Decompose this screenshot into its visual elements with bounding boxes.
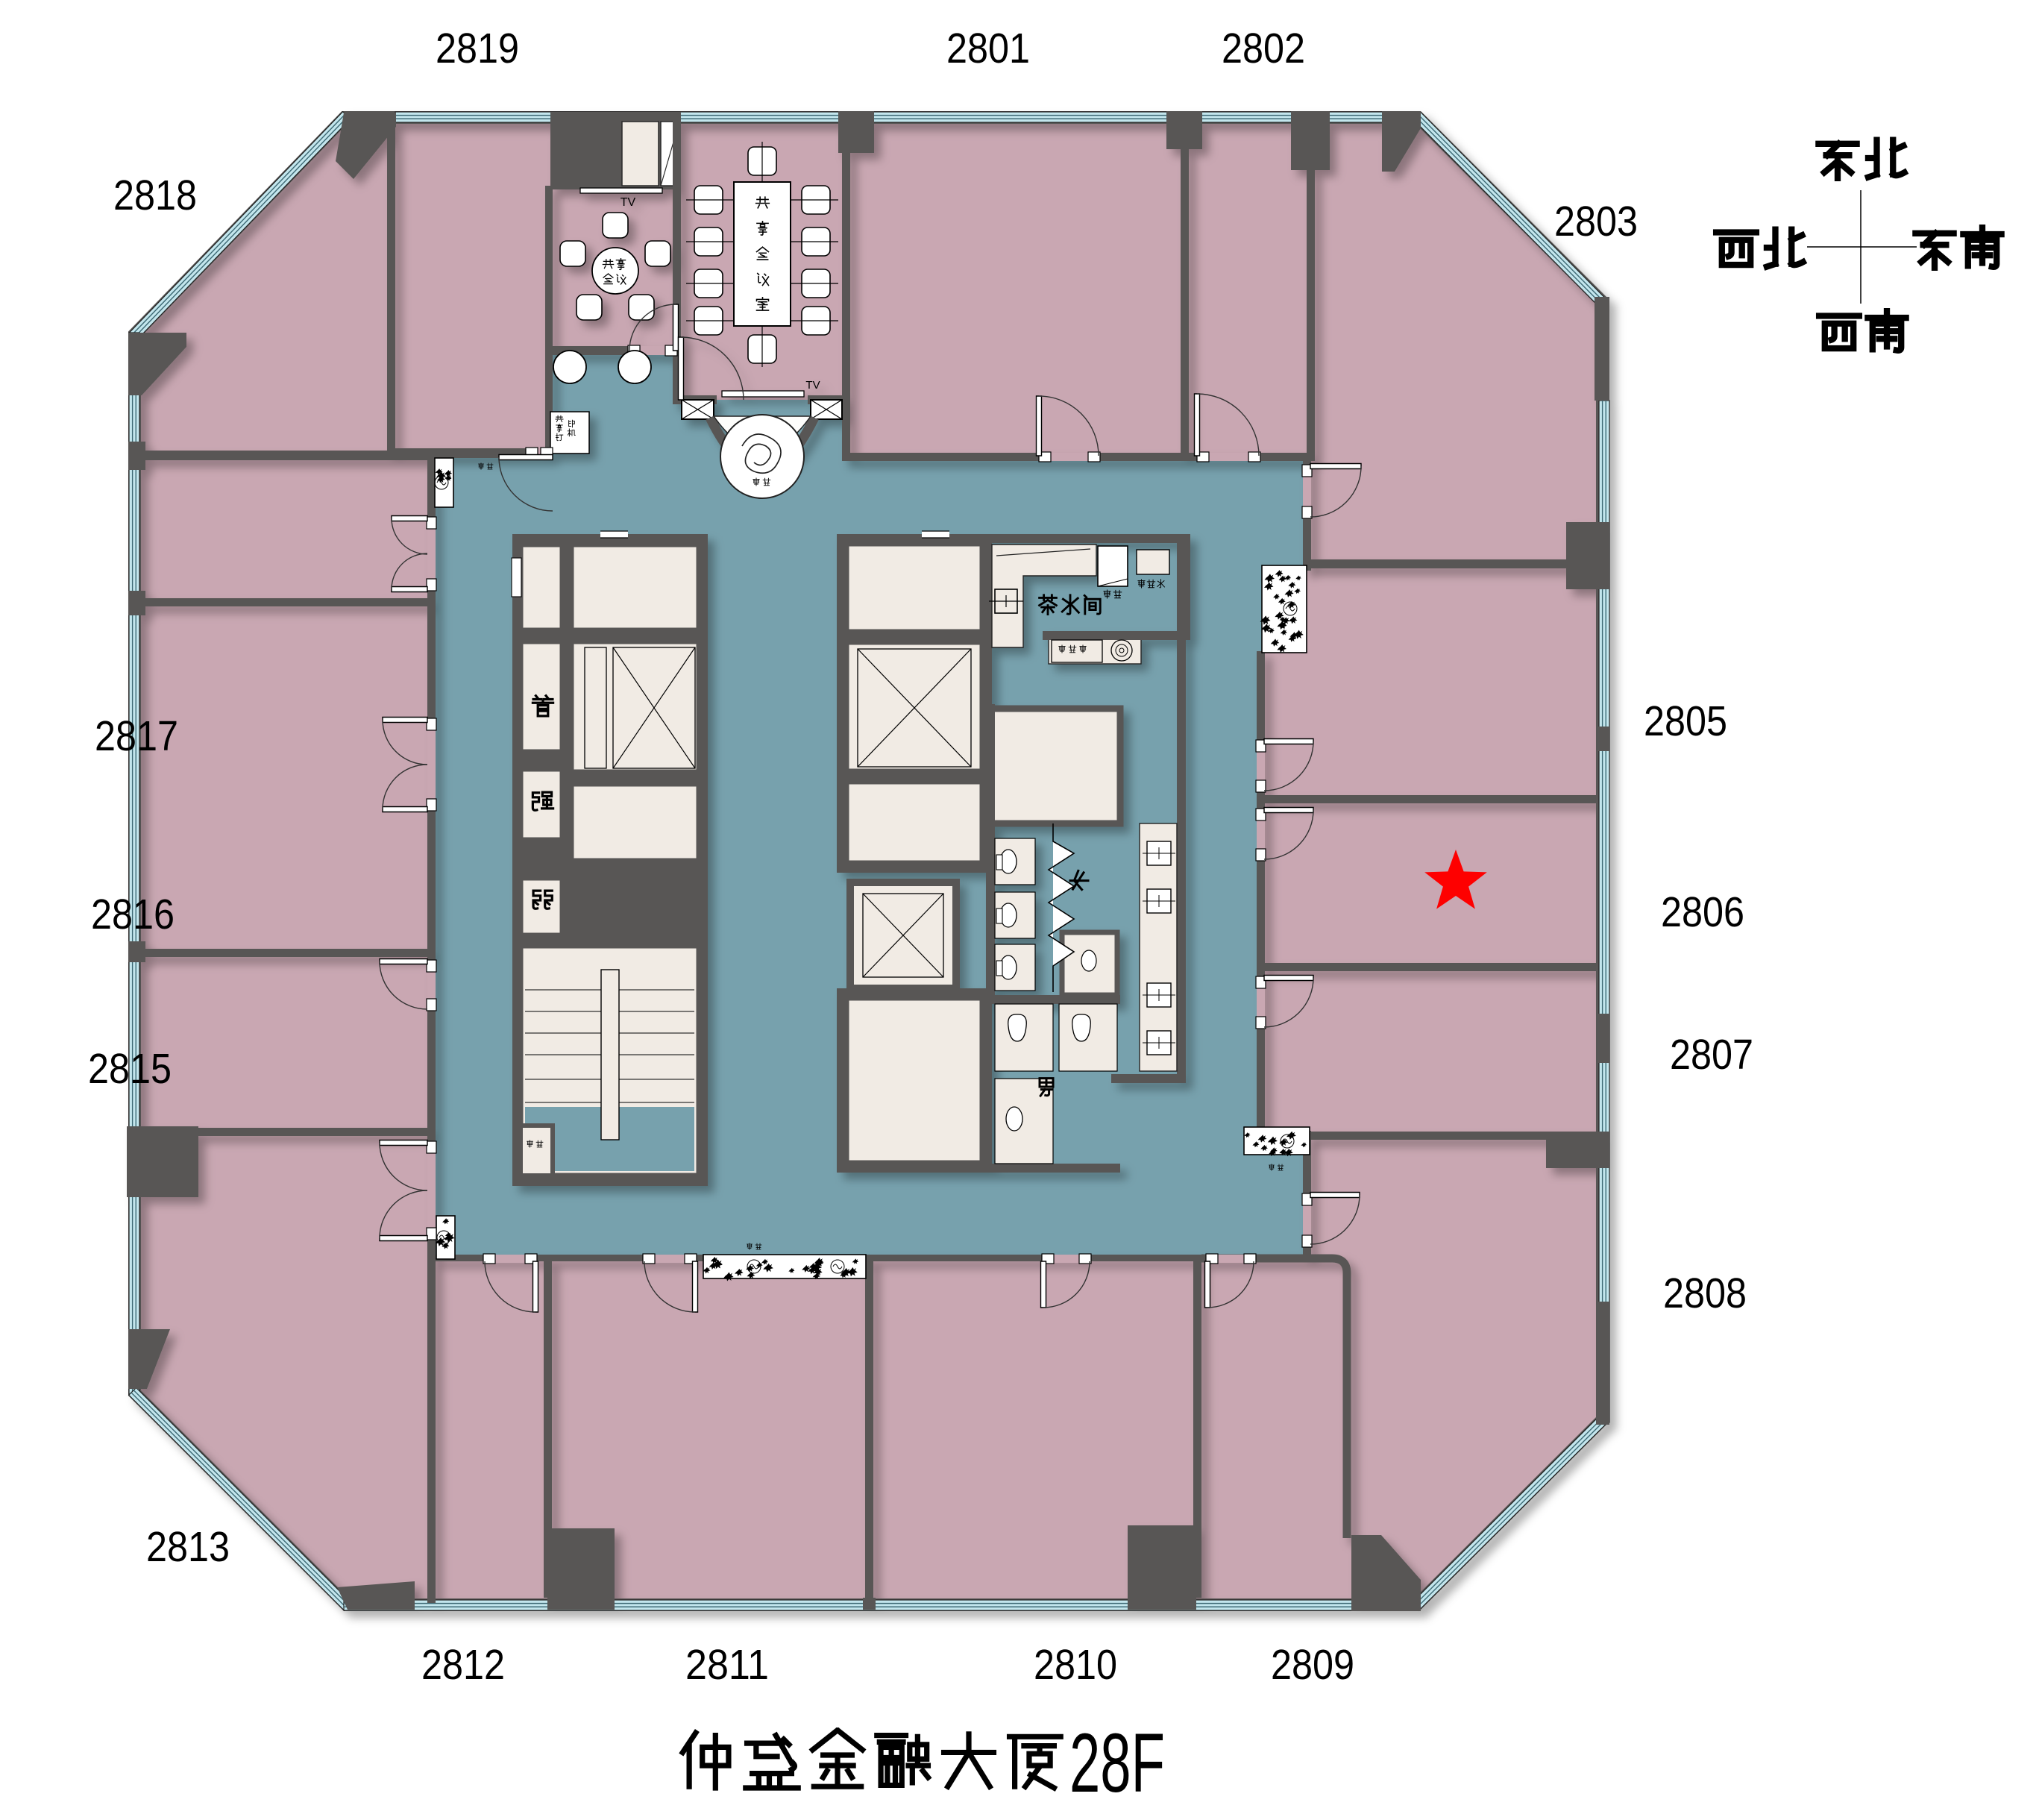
svg-text:2817: 2817 xyxy=(95,712,178,760)
svg-text:2806: 2806 xyxy=(1661,888,1744,936)
svg-text:2802: 2802 xyxy=(1222,25,1305,72)
svg-text:2815: 2815 xyxy=(88,1045,172,1093)
svg-text:2813: 2813 xyxy=(146,1523,230,1571)
svg-text:28F: 28F xyxy=(1069,1716,1165,1810)
svg-text:TV: TV xyxy=(621,196,636,209)
svg-text:2807: 2807 xyxy=(1670,1031,1753,1079)
svg-text:TV: TV xyxy=(805,379,820,392)
svg-text:2805: 2805 xyxy=(1644,697,1727,745)
svg-text:2803: 2803 xyxy=(1554,198,1638,245)
svg-text:2816: 2816 xyxy=(91,891,175,938)
svg-text:2808: 2808 xyxy=(1663,1270,1747,1317)
svg-text:2812: 2812 xyxy=(421,1641,505,1689)
svg-text:2810: 2810 xyxy=(1034,1641,1117,1689)
svg-text:2819: 2819 xyxy=(436,25,519,72)
svg-text:2811: 2811 xyxy=(685,1641,769,1689)
svg-text:2809: 2809 xyxy=(1271,1641,1354,1689)
svg-text:2801: 2801 xyxy=(946,25,1030,72)
svg-text:2818: 2818 xyxy=(113,172,197,219)
